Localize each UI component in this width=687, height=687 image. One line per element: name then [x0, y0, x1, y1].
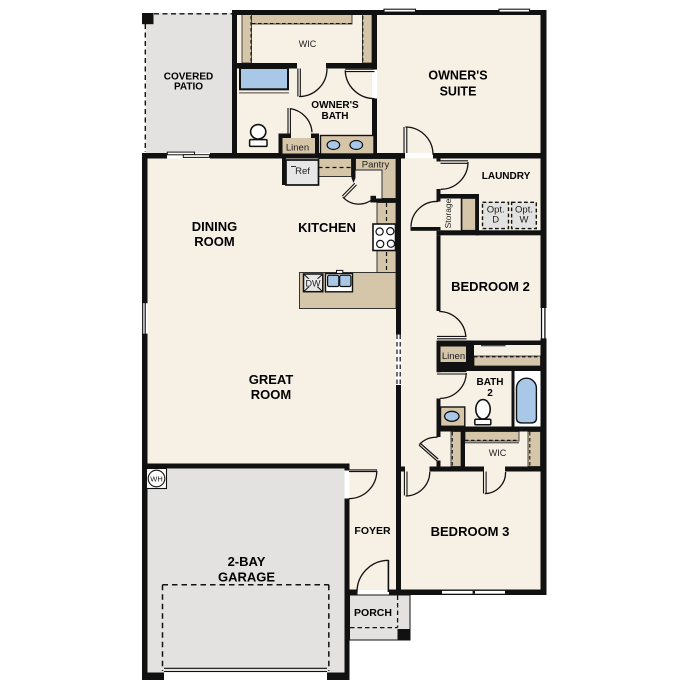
svg-text:W: W	[520, 215, 529, 226]
svg-text:Linen: Linen	[286, 143, 309, 154]
svg-text:BATH: BATH	[321, 111, 348, 122]
svg-text:ROOM: ROOM	[194, 234, 234, 249]
svg-text:D: D	[492, 215, 499, 226]
svg-text:Linen: Linen	[442, 351, 465, 362]
svg-text:Ref: Ref	[295, 166, 310, 177]
svg-text:OWNER'S: OWNER'S	[311, 100, 359, 111]
svg-text:SUITE: SUITE	[440, 85, 477, 99]
svg-text:ROOM: ROOM	[251, 387, 291, 402]
svg-text:WIC: WIC	[489, 448, 507, 458]
svg-text:GARAGE: GARAGE	[218, 569, 275, 584]
svg-text:PATIO: PATIO	[174, 82, 203, 93]
svg-text:2-BAY: 2-BAY	[228, 554, 266, 569]
svg-text:FOYER: FOYER	[354, 525, 391, 537]
svg-text:2: 2	[487, 388, 493, 399]
svg-text:DW: DW	[306, 278, 321, 288]
svg-text:BEDROOM 2: BEDROOM 2	[451, 279, 530, 294]
svg-text:WH: WH	[150, 474, 163, 483]
svg-text:GREAT: GREAT	[249, 372, 294, 387]
svg-text:WIC: WIC	[299, 39, 317, 49]
svg-text:DINING: DINING	[192, 219, 238, 234]
svg-text:PORCH: PORCH	[354, 607, 392, 619]
svg-text:Storage: Storage	[443, 198, 453, 228]
svg-text:KITCHEN: KITCHEN	[298, 220, 356, 235]
svg-text:LAUNDRY: LAUNDRY	[482, 171, 531, 182]
svg-text:Pantry: Pantry	[362, 159, 390, 170]
svg-text:BEDROOM 3: BEDROOM 3	[431, 524, 510, 539]
svg-text:OWNER'S: OWNER'S	[428, 68, 487, 82]
svg-text:BATH: BATH	[476, 377, 503, 388]
